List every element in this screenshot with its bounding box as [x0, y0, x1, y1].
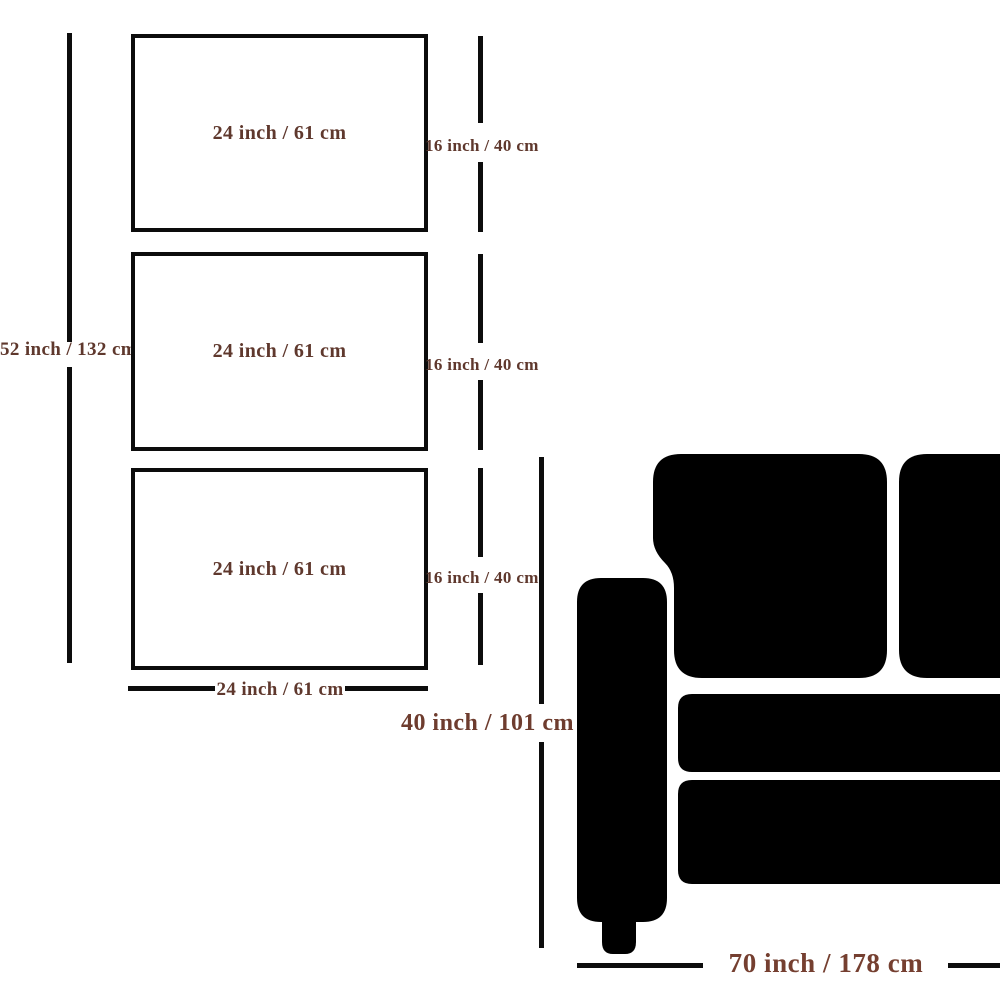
sofa-height-line-upper [539, 457, 544, 704]
sofa-width-line-right [948, 963, 1000, 968]
size-guide-diagram: 52 inch / 132 cm 24 inch / 61 cm 16 inch… [0, 0, 1000, 1000]
sofa-leg [602, 918, 636, 954]
sofa-height-label: 40 inch / 101 cm [395, 710, 580, 737]
sofa-width-line-left [577, 963, 703, 968]
sofa-seat-cushion-bottom [678, 780, 1000, 884]
sofa-armrest [577, 578, 667, 922]
sofa-silhouette [0, 0, 1000, 1000]
sofa-seat-cushion-top [678, 694, 1000, 772]
sofa-back-cushion-left [653, 454, 887, 678]
sofa-back-cushion-right [899, 454, 1000, 678]
sofa-height-line-lower [539, 742, 544, 948]
sofa-width-label: 70 inch / 178 cm [706, 948, 946, 979]
